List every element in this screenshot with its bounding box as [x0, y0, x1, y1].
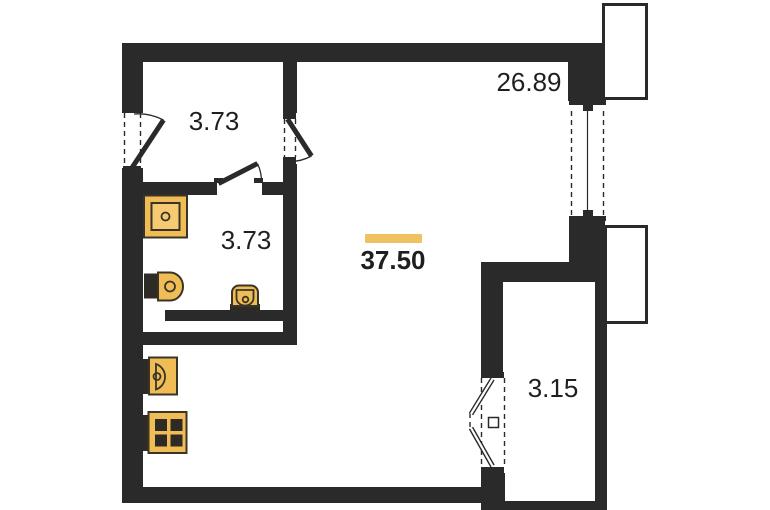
room-label-bathroom: 3.73 [198, 226, 294, 254]
stove-body [149, 412, 187, 453]
french-door-bottom-tick [481, 467, 504, 473]
hall-door-leaf-icon [288, 119, 312, 156]
wall-left-lower [122, 168, 143, 503]
bathroom-door-leaf-icon [219, 164, 258, 184]
window-sill-bar [569, 216, 606, 221]
stove-burner [171, 435, 183, 447]
wall-bathroom-top-right [262, 182, 283, 195]
toilet-icon [144, 273, 183, 301]
french-door-top-tick [481, 372, 504, 378]
total-area-marker [365, 234, 422, 243]
wall-loggia-bottom [503, 501, 607, 510]
loggia-french-door [470, 378, 505, 467]
shower-inner [152, 203, 180, 230]
wall-bottom [122, 487, 505, 503]
stove-burner [171, 419, 183, 431]
shower-tray-icon [144, 196, 187, 238]
room-label-living: 26.89 [481, 68, 577, 96]
wall-loggia-top [481, 262, 605, 282]
toilet-cistern [144, 274, 158, 299]
kitchen-sink-icon [143, 358, 177, 395]
room-label-hallway: 3.73 [166, 107, 262, 135]
stove-burner [155, 419, 167, 431]
hall-door-bottom-tick [283, 157, 296, 164]
entry-door [125, 113, 164, 169]
entry-door-swing-arc [134, 114, 164, 120]
stove-burner [155, 435, 167, 447]
hall-door [285, 119, 312, 162]
stove-icon [143, 412, 187, 453]
wall-bathroom-top-left [143, 182, 217, 195]
room-label-total-area: 37.50 [345, 246, 441, 274]
balcony-middle-icon [606, 227, 647, 323]
washbasin-icon [230, 285, 260, 312]
window-top-tick [583, 104, 593, 111]
entry-door-top-tick [123, 107, 141, 113]
balcony-top-icon [604, 5, 647, 99]
wall-loggia-left-upper [481, 282, 503, 373]
wall-hall-right-upper [283, 62, 297, 113]
french-door-handle-icon [489, 418, 499, 428]
wall-bathroom-bottom-outer [143, 332, 297, 345]
toilet-bowl [158, 273, 183, 301]
floor-plan: 3.73 3.73 26.89 37.50 3.15 [0, 0, 770, 510]
window-icon [572, 111, 604, 216]
room-label-loggia: 3.15 [505, 374, 601, 402]
wall-top [122, 43, 605, 62]
wall-right-under-window [569, 221, 605, 262]
entry-door-leaf-icon [132, 120, 164, 169]
wall-left-upper [122, 43, 143, 113]
